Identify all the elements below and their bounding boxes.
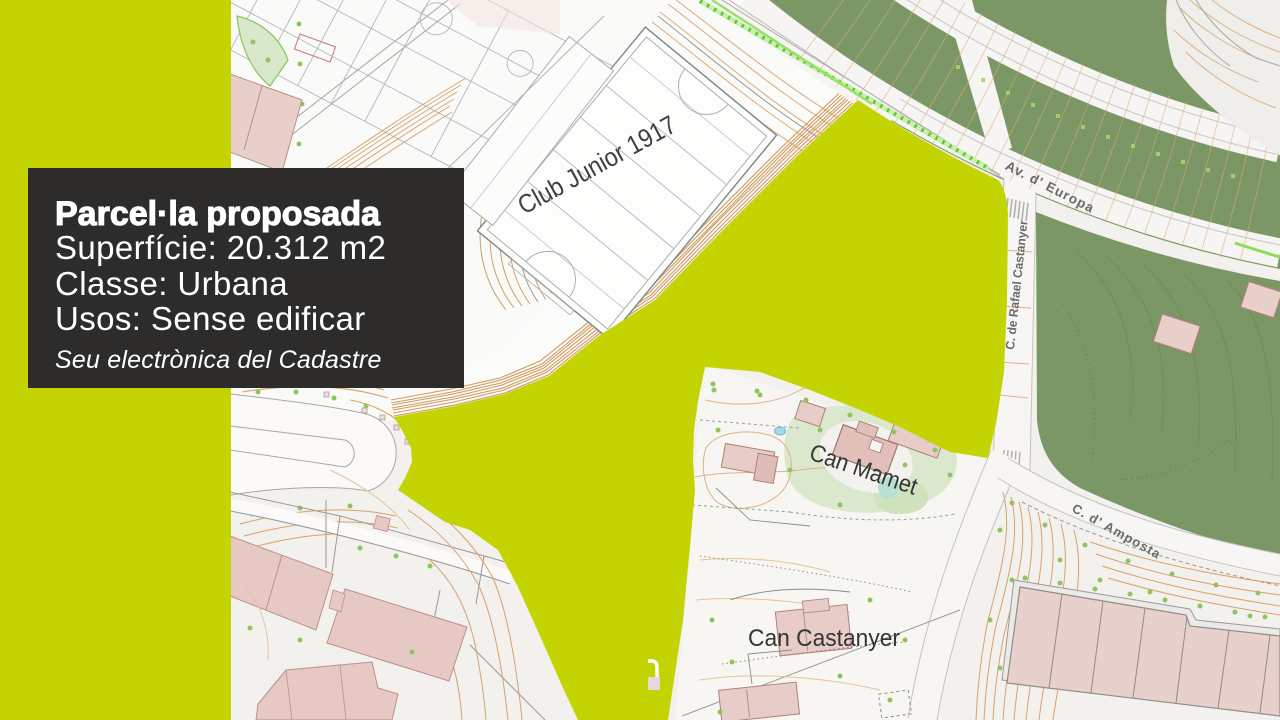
svg-text:Can Castanyer: Can Castanyer [748, 625, 900, 652]
